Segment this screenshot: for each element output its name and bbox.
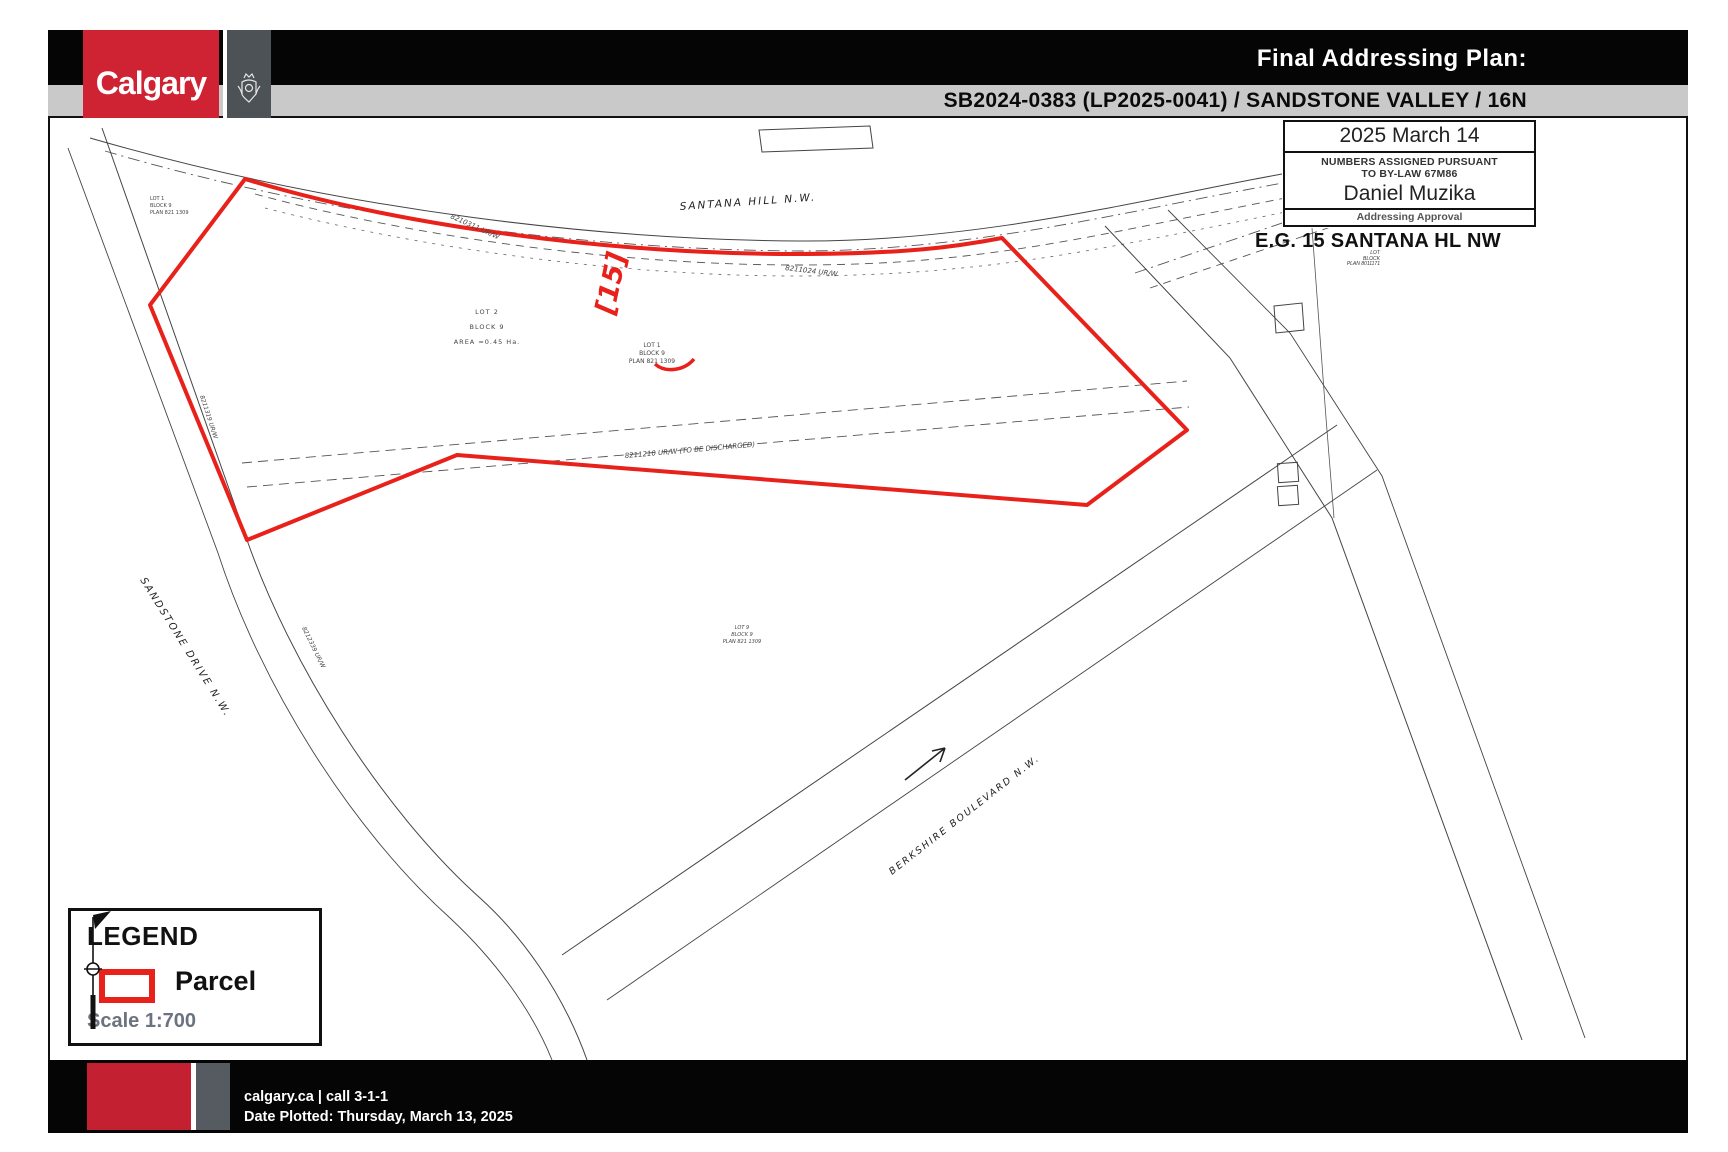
parcel-number-tag: [15] — [590, 249, 634, 318]
plan-map: SANTANA HILL N.W. 8210311 UR/W 8211024 U… — [48, 118, 1688, 1060]
road-line-berkshire-2 — [607, 470, 1377, 1000]
calgary-logo: Calgary — [83, 30, 219, 118]
calgary-logo-text: Calgary — [96, 65, 206, 102]
footer-bar: calgary.ca | call 3-1-1 Date Plotted: Th… — [48, 1060, 1688, 1133]
lot-label-lot2: LOT 2 BLOCK 9 AREA =0.45 Ha. — [454, 308, 521, 346]
survey-monument-rect — [1274, 303, 1304, 333]
svg-text:PLAN 821 1309: PLAN 821 1309 — [723, 639, 761, 645]
svg-text:PLAN 821 1309: PLAN 821 1309 — [150, 210, 189, 216]
lot-label-northwest-corner: LOT 1 BLOCK 9 PLAN 821 1309 — [150, 196, 189, 216]
svg-text:LOT 9: LOT 9 — [735, 625, 749, 631]
plan-subtitle: SB2024-0383 (LP2025-0041) / SANDSTONE VA… — [944, 85, 1527, 116]
header-subbar: SB2024-0383 (LP2025-0041) / SANDSTONE VA… — [48, 85, 1688, 118]
legend-box: LEGEND Parcel Scale 1:700 — [68, 908, 322, 1046]
survey-monument-square-2 — [1277, 485, 1298, 505]
svg-text:BLOCK 9: BLOCK 9 — [639, 350, 665, 357]
footer-red-block — [87, 1063, 191, 1130]
street-label-sandstone: SANDSTONE DRIVE N.W. — [137, 576, 232, 720]
top-survey-rectangle — [759, 126, 873, 152]
plan-title: Final Addressing Plan: — [1257, 30, 1527, 85]
footer-text: calgary.ca | call 3-1-1 Date Plotted: Th… — [244, 1087, 513, 1127]
calgary-crest-box — [223, 30, 271, 118]
survey-monument-square-1 — [1277, 462, 1298, 482]
road-line-east-corridor-2 — [1168, 210, 1585, 1038]
svg-text:AREA =0.45 Ha.: AREA =0.45 Ha. — [454, 338, 521, 346]
approval-box: 2025 March 14 NUMBERS ASSIGNED PURSUANT … — [1283, 120, 1536, 227]
street-label-berkshire: BERKSHIRE BOULEVARD N.W. — [887, 753, 1042, 878]
svg-text:LOT 1: LOT 1 — [643, 342, 660, 349]
footer-contact-line: calgary.ca | call 3-1-1 — [244, 1087, 513, 1107]
approval-body: NUMBERS ASSIGNED PURSUANT TO BY-LAW 67M8… — [1285, 153, 1534, 210]
calgary-crest-icon — [234, 72, 264, 108]
street-label-santana: SANTANA HILL N.W. — [679, 191, 816, 213]
approval-notice-line2: TO BY-LAW 67M86 — [1285, 168, 1534, 180]
footer-gray-block — [196, 1063, 230, 1130]
svg-text:BLOCK 9: BLOCK 9 — [470, 323, 505, 331]
svg-text:BLOCK 9: BLOCK 9 — [731, 632, 753, 638]
lot-label-lot9: LOT 9 BLOCK 9 PLAN 821 1309 — [723, 625, 761, 645]
berkshire-direction-arrow — [905, 748, 945, 780]
approval-date: 2025 March 14 — [1285, 122, 1534, 153]
north-arrow-icon — [71, 911, 115, 1033]
lot-label-east: LOT BLOCK PLAN 8011171 — [1328, 251, 1380, 268]
legend-parcel-label: Parcel — [175, 966, 256, 997]
road-line-santana-south — [255, 171, 1420, 265]
lot-label-lot1: LOT 1 BLOCK 9 PLAN 821 1309 — [629, 342, 675, 365]
road-line-berkshire-1 — [562, 425, 1337, 955]
addressing-plan-document: Final Addressing Plan: SB2024-0383 (LP20… — [48, 30, 1688, 1133]
svg-text:BLOCK 9: BLOCK 9 — [150, 203, 172, 209]
approver-name: Daniel Muzika — [1285, 182, 1534, 206]
svg-text:PLAN 821 1309: PLAN 821 1309 — [629, 358, 675, 365]
road-line-east-corridor-1 — [1105, 226, 1522, 1040]
header-bar: Final Addressing Plan: — [48, 30, 1688, 85]
easement-label-west-lower: 8212339 UR/W — [300, 626, 327, 671]
page: Final Addressing Plan: SB2024-0383 (LP20… — [0, 0, 1728, 1152]
approval-caption: Addressing Approval — [1285, 210, 1534, 225]
approval-notice-line1: NUMBERS ASSIGNED PURSUANT — [1285, 156, 1534, 168]
road-line-santana-south-2 — [265, 179, 1440, 276]
svg-text:LOT 1: LOT 1 — [150, 196, 164, 202]
easement-label-middle: 8211210 UR/W (TO BE DISCHARGED) — [624, 441, 755, 460]
footer-date-plotted: Date Plotted: Thursday, March 13, 2025 — [244, 1107, 513, 1127]
svg-text:LOT 2: LOT 2 — [475, 308, 499, 316]
